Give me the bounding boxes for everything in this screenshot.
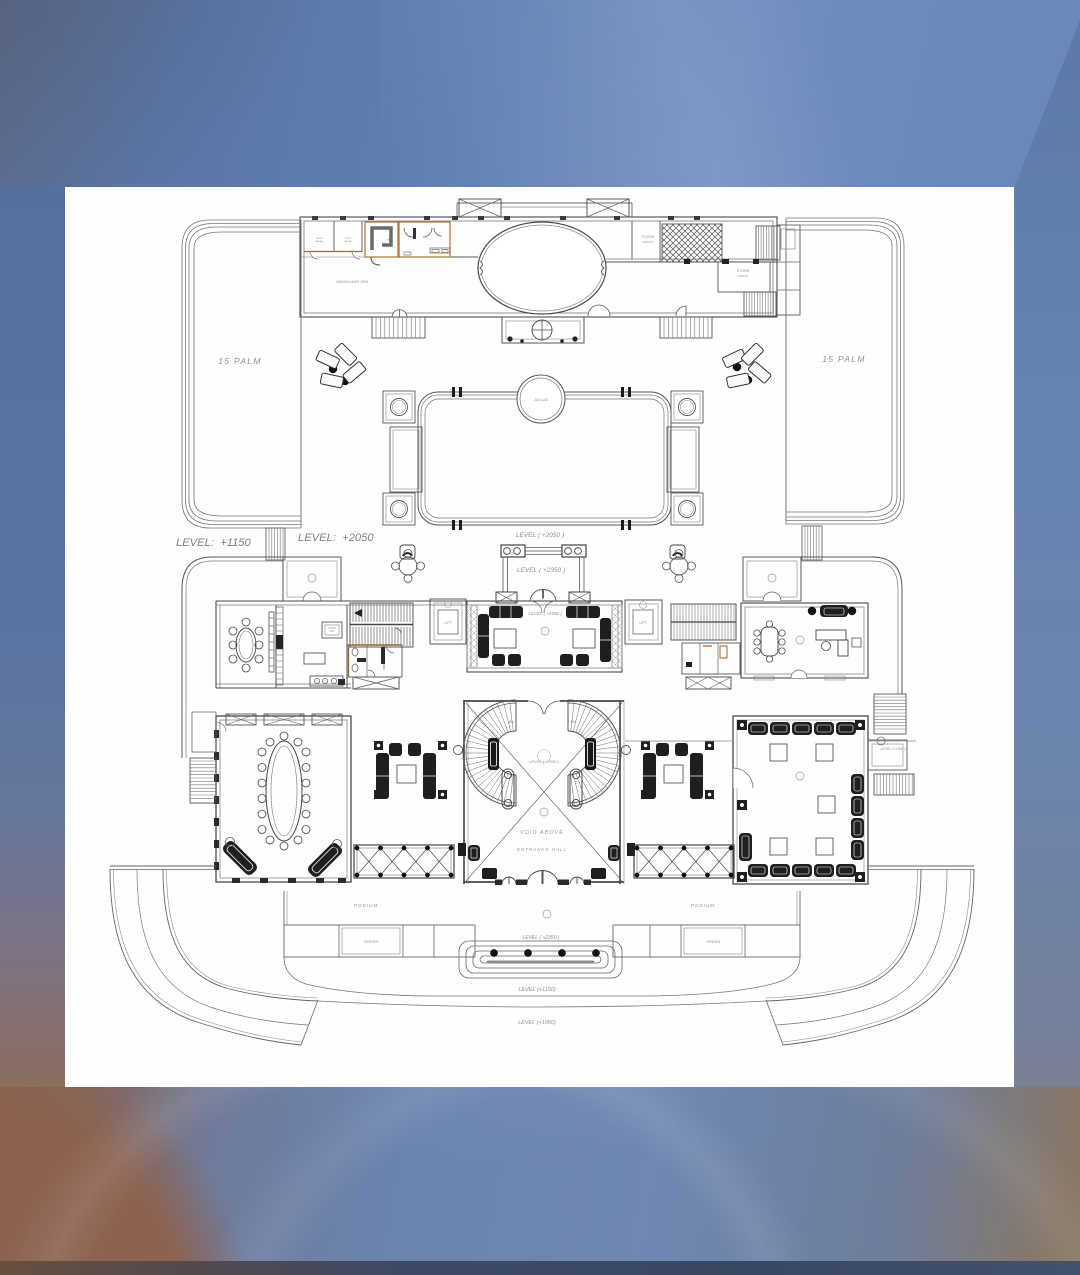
svg-text:LIFT: LIFT — [444, 621, 452, 625]
svg-text:STORE: STORE — [736, 269, 749, 273]
svg-text:LEVEL ( +2350 ): LEVEL ( +2350 ) — [529, 759, 559, 764]
svg-text:LEVEL ( +2350 ): LEVEL ( +2350 ) — [528, 611, 562, 616]
svg-text:LEVEL (+1150): LEVEL (+1150) — [518, 987, 556, 993]
svg-text:LEVEL: +1150: LEVEL: +1150 — [176, 537, 252, 549]
svg-text:LEVEL: +2050: LEVEL: +2050 — [298, 532, 374, 544]
svg-text:JACUZZI: JACUZZI — [533, 398, 548, 402]
svg-text:GREEN: GREEN — [364, 939, 378, 944]
svg-text:DN: DN — [571, 720, 576, 724]
svg-text:PODIUM: PODIUM — [354, 903, 378, 908]
svg-text:SAUNA: SAUNA — [315, 240, 323, 243]
svg-text:LIFT: LIFT — [639, 621, 647, 625]
svg-text:TWO-P: TWO-P — [344, 238, 352, 240]
svg-text:ENTRANCE HALL: ENTRANCE HALL — [517, 847, 567, 852]
svg-text:PODIUM: PODIUM — [691, 903, 715, 908]
svg-text:15 PALM: 15 PALM — [218, 356, 261, 366]
svg-text:LEVEL ( +2350 ): LEVEL ( +2350 ) — [522, 935, 559, 941]
svg-text:TWO-P: TWO-P — [315, 238, 323, 240]
svg-text:VOID ABOVE: VOID ABOVE — [520, 830, 564, 836]
svg-text:15 PALM: 15 PALM — [822, 354, 865, 364]
svg-text:LEVEL (+1050): LEVEL (+1050) — [518, 1020, 556, 1026]
svg-text:CAPACITY: CAPACITY — [737, 275, 749, 278]
svg-text:CAPACITY: CAPACITY — [642, 241, 654, 244]
svg-text:LIFT: LIFT — [330, 630, 335, 633]
svg-text:LEVEL ( +2350 ): LEVEL ( +2350 ) — [517, 567, 565, 574]
svg-text:LEVEL ( +2050 ): LEVEL ( +2050 ) — [516, 532, 564, 539]
svg-text:STORE: STORE — [641, 235, 654, 239]
svg-text:LEVEL (+2350 ): LEVEL (+2350 ) — [880, 747, 905, 751]
svg-text:SAUNA: SAUNA — [344, 240, 352, 243]
svg-text:DN: DN — [509, 720, 514, 724]
svg-text:GREEN: GREEN — [706, 939, 720, 944]
svg-text:SAUNA AND SPA: SAUNA AND SPA — [336, 279, 368, 284]
